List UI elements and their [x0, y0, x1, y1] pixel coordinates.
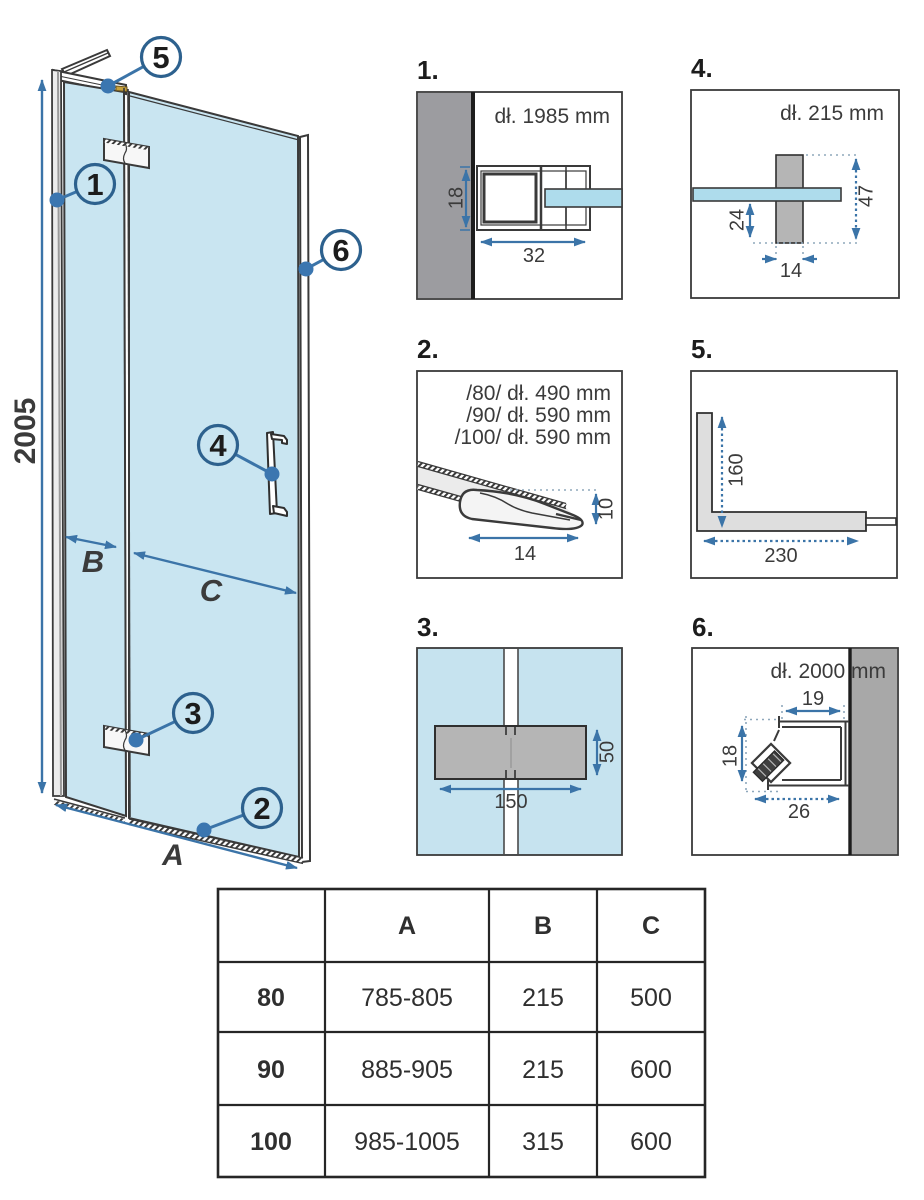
svg-text:32: 32	[523, 245, 545, 267]
svg-text:80: 80	[257, 984, 285, 1012]
svg-text:/90/ dł. 590 mm: /90/ dł. 590 mm	[466, 404, 611, 427]
svg-text:500: 500	[630, 984, 672, 1012]
svg-text:26: 26	[788, 801, 810, 823]
svg-text:10: 10	[595, 498, 617, 520]
svg-text:3.: 3.	[417, 612, 439, 642]
svg-text:/80/ dł. 490 mm: /80/ dł. 490 mm	[466, 382, 611, 405]
svg-text:2005: 2005	[9, 398, 42, 465]
svg-text:4: 4	[209, 428, 227, 463]
svg-text:3: 3	[184, 696, 201, 731]
svg-text:A: A	[398, 912, 416, 940]
svg-text:2: 2	[253, 791, 270, 826]
svg-text:785-805: 785-805	[361, 984, 453, 1012]
svg-text:600: 600	[630, 1056, 672, 1084]
svg-text:6: 6	[332, 233, 349, 268]
svg-text:A: A	[161, 839, 184, 872]
svg-text:18: 18	[719, 745, 741, 767]
svg-text:1.: 1.	[417, 55, 439, 85]
svg-text:dł. 1985 mm: dł. 1985 mm	[494, 105, 610, 128]
svg-text:215: 215	[522, 1056, 564, 1084]
svg-text:18: 18	[445, 187, 467, 209]
svg-text:600: 600	[630, 1128, 672, 1156]
svg-text:50: 50	[596, 741, 618, 763]
svg-text:B: B	[534, 912, 552, 940]
svg-text:2.: 2.	[417, 334, 439, 364]
svg-text:4.: 4.	[691, 53, 713, 83]
svg-text:14: 14	[780, 260, 802, 282]
svg-text:5.: 5.	[691, 334, 713, 364]
svg-text:B: B	[82, 544, 104, 579]
svg-text:47: 47	[855, 185, 877, 207]
svg-text:dł. 2000 mm: dł. 2000 mm	[770, 660, 886, 683]
svg-text:230: 230	[764, 545, 797, 567]
svg-text:6.: 6.	[692, 612, 714, 642]
svg-text:885-905: 885-905	[361, 1056, 453, 1084]
svg-text:19: 19	[802, 688, 824, 710]
svg-text:150: 150	[494, 791, 527, 813]
svg-text:100: 100	[250, 1128, 292, 1156]
svg-text:C: C	[200, 573, 223, 608]
svg-text:14: 14	[514, 543, 536, 565]
svg-text:215: 215	[522, 984, 564, 1012]
svg-text:5: 5	[152, 40, 169, 75]
svg-text:315: 315	[522, 1128, 564, 1156]
svg-text:C: C	[642, 912, 660, 940]
svg-text:90: 90	[257, 1056, 285, 1084]
svg-text:dł. 215 mm: dł. 215 mm	[780, 102, 884, 125]
svg-text:/100/ dł. 590 mm: /100/ dł. 590 mm	[455, 426, 611, 449]
svg-text:24: 24	[726, 209, 748, 231]
svg-text:1: 1	[86, 167, 103, 202]
svg-text:160: 160	[725, 453, 747, 486]
svg-text:985-1005: 985-1005	[354, 1128, 460, 1156]
